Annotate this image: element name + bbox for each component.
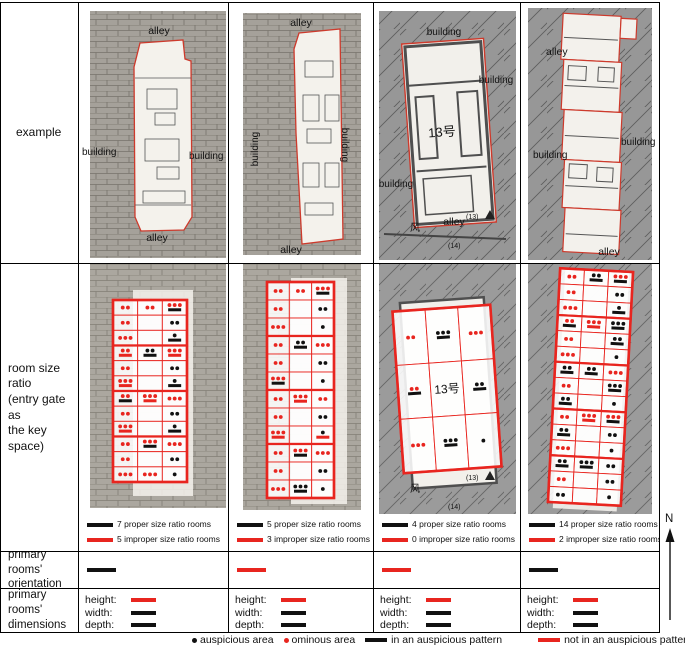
proper-count-text: 7 proper size ratio rooms <box>117 517 211 532</box>
improper-bar-swatch <box>237 538 263 542</box>
example-plan-4: alley building building alley <box>521 3 658 264</box>
ratio-cell-1: 7 proper size ratio rooms 5 improper siz… <box>79 264 229 552</box>
proper-count-line: 7 proper size ratio rooms <box>87 517 220 532</box>
orientation-cell-2 <box>229 552 374 589</box>
dimensions-list: height: width: depth: <box>229 589 373 632</box>
comparison-table: example <box>0 2 660 633</box>
dimensions-label-line2: dimensions <box>8 618 78 632</box>
dimensions-list: height: width: depth: <box>521 589 659 632</box>
proper-bar-swatch <box>87 523 113 527</box>
width-row: width: <box>235 607 373 620</box>
ratio-plan-4 <box>521 264 658 514</box>
plot-marker-13: (13) <box>466 475 478 482</box>
orientation-label-line1: primary rooms' <box>8 552 78 577</box>
ratio-counts: 5 proper size ratio rooms 3 improper siz… <box>237 517 370 547</box>
alley-label-top: alley <box>148 25 170 37</box>
plot-marker-14: (14) <box>448 504 460 511</box>
building-label-left: building <box>82 147 116 158</box>
depth-row: depth: <box>85 619 228 632</box>
room-grid <box>267 282 334 498</box>
depth-bar <box>281 623 306 627</box>
depth-label: depth: <box>527 619 565 632</box>
alley-label-bottom: alley <box>443 216 465 228</box>
dimensions-cell-3: height: width: depth: <box>374 589 521 632</box>
width-row: width: <box>527 607 659 620</box>
ratio-label-line1: room size ratio <box>8 361 78 392</box>
dimensions-cell-1: height: width: depth: <box>79 589 229 632</box>
depth-label: depth: <box>380 619 418 632</box>
legend-item-auspicious-area: auspicious area <box>192 634 274 646</box>
comparison-figure: example <box>0 0 685 650</box>
depth-bar <box>426 623 451 627</box>
alley-label-bottom: alley <box>598 246 620 258</box>
dimensions-list: height: width: depth: <box>79 589 228 632</box>
ratio-plan-3: 13号 (13) 风 (14) <box>374 264 520 514</box>
plan-group: 13号 <box>402 38 497 227</box>
proper-count-line: 4 proper size ratio rooms <box>382 517 515 532</box>
width-row: width: <box>380 607 520 620</box>
room-grid: 13号 <box>392 305 501 473</box>
orientation-bar <box>529 568 558 572</box>
improper-count-text: 3 improper size ratio rooms <box>267 532 370 547</box>
plot-marker-13: (13) <box>466 214 478 221</box>
row-label-example-text: example <box>16 125 78 141</box>
proper-count-line: 14 proper size ratio rooms <box>529 517 659 532</box>
orientation-bar <box>87 568 116 572</box>
orientation-label-line2: orientation <box>8 577 78 589</box>
height-label: height: <box>235 594 273 607</box>
row-label-orientation: primary rooms' orientation <box>1 552 79 589</box>
north-arrow: N <box>658 508 684 648</box>
legend-auspicious-area-text: auspicious area <box>200 634 274 646</box>
height-bar <box>573 598 598 602</box>
ratio-counts: 14 proper size ratio rooms 2 improper si… <box>529 517 659 547</box>
example-cell-1: alley building building alley <box>79 3 229 264</box>
height-bar <box>131 598 156 602</box>
dimensions-cell-2: height: width: depth: <box>229 589 374 632</box>
wind-character: 风 <box>410 483 420 495</box>
improper-count-line: 0 improper size ratio rooms <box>382 532 515 547</box>
depth-row: depth: <box>380 619 520 632</box>
proper-bar-swatch <box>237 523 263 527</box>
improper-count-line: 2 improper size ratio rooms <box>529 532 659 547</box>
height-row: height: <box>85 594 228 607</box>
building-label-right: building <box>479 75 513 86</box>
room-grid <box>113 300 187 482</box>
orientation-bar <box>237 568 266 572</box>
height-label: height: <box>380 594 418 607</box>
proper-bar-swatch <box>382 523 408 527</box>
room-grid <box>548 268 633 505</box>
improper-count-line: 5 improper size ratio rooms <box>87 532 220 547</box>
proper-count-text: 14 proper size ratio rooms <box>559 517 658 532</box>
wind-character: 风 <box>410 222 420 234</box>
alley-label-bottom: alley <box>280 244 302 256</box>
depth-bar <box>131 623 156 627</box>
width-bar <box>131 611 156 615</box>
dimensions-label-line1: primary rooms' <box>8 589 78 618</box>
improper-count-text: 0 improper size ratio rooms <box>412 532 515 547</box>
building-label-right: building <box>189 151 223 162</box>
improper-count-text: 5 improper size ratio rooms <box>117 532 220 547</box>
example-plan-3: 13号 building building building alley (13… <box>374 3 520 264</box>
figure-legend: auspicious area ominous area in an auspi… <box>192 634 685 646</box>
building-label-right: building <box>339 128 350 162</box>
proper-count-text: 5 proper size ratio rooms <box>267 517 361 532</box>
ominous-dot-icon <box>284 638 289 643</box>
improper-count-text: 2 improper size ratio rooms <box>559 532 659 547</box>
ratio-counts: 4 proper size ratio rooms 0 improper siz… <box>382 517 515 547</box>
width-bar <box>426 611 451 615</box>
row-label-example: example <box>1 3 79 264</box>
depth-row: depth: <box>527 619 659 632</box>
example-plan-2: alley building building alley <box>229 3 373 264</box>
height-row: height: <box>527 594 659 607</box>
building-label-top: building <box>427 27 461 38</box>
svg-text:13号: 13号 <box>434 381 460 397</box>
width-label: width: <box>235 607 273 620</box>
height-label: height: <box>85 594 123 607</box>
width-label: width: <box>527 607 565 620</box>
proper-bar-swatch <box>529 523 555 527</box>
legend-item-ominous-area: ominous area <box>284 634 356 646</box>
north-arrow-head <box>666 528 675 542</box>
plot-marker-14: (14) <box>448 243 460 250</box>
ratio-plan-2 <box>229 264 373 514</box>
north-label: N <box>665 513 673 525</box>
height-row: height: <box>235 594 373 607</box>
orientation-bar <box>382 568 411 572</box>
example-cell-4: alley building building alley <box>521 3 659 264</box>
proper-count-text: 4 proper size ratio rooms <box>412 517 506 532</box>
legend-item-auspicious-pattern: in an auspicious pattern <box>365 634 502 646</box>
depth-label: depth: <box>85 619 123 632</box>
width-bar <box>281 611 306 615</box>
height-bar <box>426 598 451 602</box>
auspicious-dot-icon <box>192 638 197 643</box>
width-row: width: <box>85 607 228 620</box>
ratio-cell-2: 5 proper size ratio rooms 3 improper siz… <box>229 264 374 552</box>
ratio-cell-3: 13号 (13) 风 (14) 4 proper size ratio room… <box>374 264 521 552</box>
improper-bar-swatch <box>87 538 113 542</box>
width-label: width: <box>380 607 418 620</box>
row-label-room-size-ratio: room size ratio (entry gate as the key s… <box>1 264 79 552</box>
alley-label-top: alley <box>290 17 312 29</box>
example-plan-1: alley building building alley <box>79 3 228 264</box>
improper-bar-swatch <box>529 538 555 542</box>
height-label: height: <box>527 594 565 607</box>
ratio-label-line3: the key space) <box>8 423 78 454</box>
legend-auspicious-pattern-text: in an auspicious pattern <box>391 634 502 646</box>
building-label-left: building <box>379 179 413 190</box>
depth-label: depth: <box>235 619 273 632</box>
ratio-counts: 7 proper size ratio rooms 5 improper siz… <box>87 517 220 547</box>
proper-count-line: 5 proper size ratio rooms <box>237 517 370 532</box>
width-label: width: <box>85 607 123 620</box>
ratio-cell-4: 14 proper size ratio rooms 2 improper si… <box>521 264 659 552</box>
not-auspicious-pattern-bar-icon <box>538 638 560 642</box>
height-bar <box>281 598 306 602</box>
ratio-plan-1 <box>79 264 228 514</box>
orientation-cell-3 <box>374 552 521 589</box>
legend-ominous-area-text: ominous area <box>292 634 356 646</box>
auspicious-pattern-bar-icon <box>365 638 387 642</box>
dimensions-cell-4: height: width: depth: <box>521 589 659 632</box>
building-label-left: building <box>250 132 261 166</box>
depth-row: depth: <box>235 619 373 632</box>
example-cell-3: 13号 building building building alley (13… <box>374 3 521 264</box>
orientation-cell-1 <box>79 552 229 589</box>
width-bar <box>573 611 598 615</box>
improper-count-line: 3 improper size ratio rooms <box>237 532 370 547</box>
ratio-label-line2: (entry gate as <box>8 392 78 423</box>
alley-label-top: alley <box>546 46 568 58</box>
alley-label-bottom: alley <box>146 232 168 244</box>
orientation-cell-4 <box>521 552 659 589</box>
unit-number-label: 13号 <box>428 124 456 141</box>
row-label-dimensions: primary rooms' dimensions <box>1 589 79 632</box>
height-row: height: <box>380 594 520 607</box>
building-label-right: building <box>621 137 655 148</box>
improper-bar-swatch <box>382 538 408 542</box>
dimensions-list: height: width: depth: <box>374 589 520 632</box>
depth-bar <box>573 623 598 627</box>
example-cell-2: alley building building alley <box>229 3 374 264</box>
building-label-left: building <box>533 150 567 161</box>
